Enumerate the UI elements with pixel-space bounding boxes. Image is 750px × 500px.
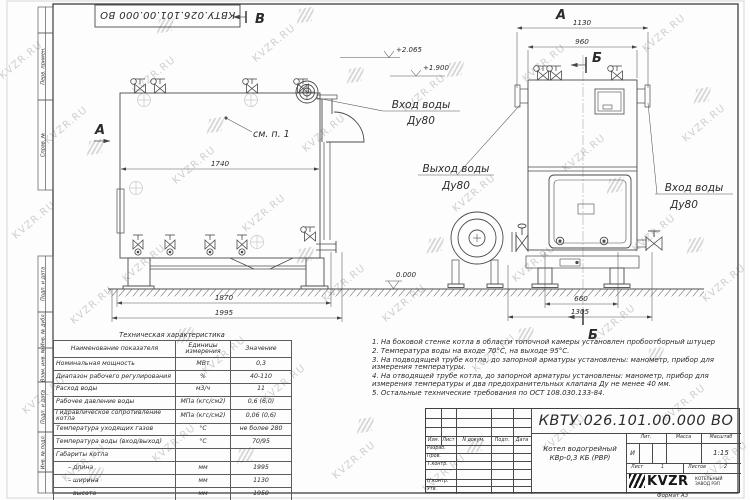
view-markers xyxy=(94,11,586,325)
boiler-side-view xyxy=(117,79,364,289)
product-title-line2: КВр-0,3 КБ (РВР) xyxy=(533,454,627,463)
divider xyxy=(626,463,741,464)
col-header-sign: Подп. xyxy=(491,439,513,444)
row-label-tcontrol: Т.контр. xyxy=(427,463,448,468)
dim-960: 960 xyxy=(575,37,589,46)
view-marker-v: В xyxy=(255,12,265,27)
level-zero: 0.000 xyxy=(396,271,417,279)
table-row: Диапазон рабочего регулирования%40-110 xyxy=(54,370,292,383)
row-label-developed: Разраб. xyxy=(427,447,446,452)
cell: 40-110 xyxy=(231,370,292,383)
cell: Гидравлическое сопротивление котла xyxy=(54,409,176,423)
cell: 1995 xyxy=(231,462,292,475)
cell: °С xyxy=(176,436,231,449)
dim-1305: 1305 xyxy=(571,307,590,316)
pipe-labels: см. п. 1 Вход воды Ду80 Выход воды Ду80 … xyxy=(253,99,723,211)
col-header-izm: Изм. xyxy=(426,439,441,444)
divider xyxy=(426,469,531,470)
col-header-date: Дата xyxy=(513,439,531,444)
table-row: Гидравлическое сопротивление котлаМПа (к… xyxy=(54,409,292,423)
format-note: Формат А3 xyxy=(600,493,745,499)
cell: Рабочее давление воды xyxy=(54,396,176,409)
margin-cell-label: Инв. № дубл. xyxy=(41,313,47,347)
cell xyxy=(176,449,231,462)
row-label-ncontrol: Н.контр. xyxy=(427,480,448,485)
dim-660: 660 xyxy=(574,294,588,303)
dim-1995: 1995 xyxy=(215,308,234,317)
cell: 1130 xyxy=(231,475,292,488)
dim-1130: 1130 xyxy=(573,18,592,27)
table-row: Рабочее давление водыМПа (кгс/см2)0,6 (6… xyxy=(54,396,292,409)
cell: – длина xyxy=(54,462,176,475)
water-inlet-label-right: Вход воды xyxy=(665,182,724,194)
note-item: 1. На боковой стенке котла в области топ… xyxy=(372,339,738,347)
product-title-line1: Котел водогрейный xyxy=(533,445,627,454)
divider xyxy=(491,409,492,494)
cell: МПа (кгс/см2) xyxy=(176,409,231,423)
cell: мм xyxy=(176,488,231,500)
cell: МПа (кгс/см2) xyxy=(176,396,231,409)
level-2065: +2.065 xyxy=(396,46,422,54)
margin-cell-label: Взам. инв. № xyxy=(41,348,47,382)
cell: мм xyxy=(176,462,231,475)
section-marker-b-top: Б xyxy=(592,51,602,66)
col-header: Наименование показателя xyxy=(54,341,176,358)
row-label-approved: Утв. xyxy=(427,488,437,493)
divider xyxy=(513,409,514,494)
cell: % xyxy=(176,370,231,383)
cell: 0,3 xyxy=(231,358,292,371)
title-block: КВТУ.026.101.00.000 ВО Изм. Лист N докум… xyxy=(425,408,740,493)
cell: МВт xyxy=(176,358,231,371)
sheets-value: 2 xyxy=(724,466,727,471)
cell: Номинальная мощность xyxy=(54,358,176,371)
row-label-checked: Пров. xyxy=(427,455,441,460)
table-row: – ширинамм1130 xyxy=(54,475,292,488)
water-inlet-dn-right: Ду80 xyxy=(669,199,698,211)
brand-subtitle-line2: ЗАВОД РЭП xyxy=(695,481,722,486)
kvzr-logo-icon xyxy=(629,474,645,488)
water-inlet-label-left: Вход воды xyxy=(392,99,451,111)
cell: °С xyxy=(176,423,231,436)
table-row: – длинамм1995 xyxy=(54,462,292,475)
cell: Температура воды (вход/выход) xyxy=(54,436,176,449)
divider xyxy=(652,443,653,463)
divider xyxy=(426,427,531,428)
divider xyxy=(626,443,741,444)
leader-lines xyxy=(225,98,733,194)
divider xyxy=(456,409,457,494)
cell: Диапазон рабочего регулирования xyxy=(54,370,176,383)
divider xyxy=(639,443,640,463)
drawing-sheet: KVZR.RUKVZR.RUKVZR.RUKVZR.RUKVZR.RUKVZR.… xyxy=(0,0,750,500)
cell: 1950 xyxy=(231,488,292,500)
technical-notes: 1. На боковой стенке котла в области топ… xyxy=(372,339,738,399)
col-header-list: Лист xyxy=(441,439,456,444)
cell xyxy=(231,449,292,462)
col-header-doc: N докум. xyxy=(456,439,491,444)
table-row: – высотамм1950 xyxy=(54,488,292,500)
ground-hatch xyxy=(108,289,704,297)
divider xyxy=(426,436,531,437)
table-header-row: Наименование показателя Единицы измерени… xyxy=(54,341,292,358)
stamp-doc-number: КВТУ.026.101.00.000 ВО xyxy=(100,9,236,20)
cell: – высота xyxy=(54,488,176,500)
cell: Температура уходящих газов xyxy=(54,423,176,436)
margin-cell-label: Справ. № xyxy=(41,133,47,157)
cell: Расход воды xyxy=(54,383,176,396)
doc-number: КВТУ.026.101.00.000 ВО xyxy=(531,413,741,429)
top-stamp: КВТУ.026.101.00.000 ВО xyxy=(95,5,240,27)
level-1900: +1.900 xyxy=(423,64,449,72)
spec-table: Наименование показателя Единицы измерени… xyxy=(53,340,292,500)
view-marker-a: А xyxy=(555,8,566,23)
cell: 11 xyxy=(231,383,292,396)
cell: м3/ч xyxy=(176,383,231,396)
sheets-label: Листов xyxy=(688,466,706,471)
cell: мм xyxy=(176,475,231,488)
scale-label: Масштаб xyxy=(701,436,741,441)
divider xyxy=(426,418,531,419)
lit-value: И xyxy=(626,450,639,457)
cell: – ширина xyxy=(54,475,176,488)
margin-cell-label: Подп. и дата xyxy=(41,390,47,424)
table-row: Расход водым3/ч11 xyxy=(54,383,292,396)
note-item: 3. На подводящей трубе котла, до запорно… xyxy=(372,357,738,373)
dim-1740: 1740 xyxy=(211,159,230,168)
table-row: Температура уходящих газов°Сне более 280 xyxy=(54,423,292,436)
section-marker-a: А xyxy=(94,123,105,138)
brand-subtitle: КОТЕЛЬНЫЙ ЗАВОД РЭП xyxy=(695,476,722,486)
spec-table-block: Техническая характеристика Наименование … xyxy=(53,331,291,500)
cell: не более 280 xyxy=(231,423,292,436)
margin-cell-label: Перв. примен. xyxy=(41,47,47,85)
note-item: 2. Температура воды на входе 70°С, на вы… xyxy=(372,348,738,356)
mass-label: Масса xyxy=(666,436,701,441)
scale-value: 1:15 xyxy=(701,450,741,457)
boiler-end-view xyxy=(448,55,662,312)
sheet-value: 1 xyxy=(661,466,664,471)
table-row: Номинальная мощностьМВт0,3 xyxy=(54,358,292,371)
water-outlet-dn: Ду80 xyxy=(441,180,470,192)
col-header: Значение xyxy=(231,341,292,358)
margin-cell-label: Инв. № подл. xyxy=(41,435,47,470)
lit-label: Лит. xyxy=(626,436,666,441)
brand-name: KVZR xyxy=(647,474,689,489)
cell: 0,06 (0,6) xyxy=(231,409,292,423)
margin-cell-label: Подп. и дата xyxy=(41,267,47,301)
spec-table-title: Техническая характеристика xyxy=(53,331,291,339)
dim-1870: 1870 xyxy=(215,293,234,302)
cell: Габариты котла xyxy=(54,449,176,462)
table-row: Габариты котла xyxy=(54,449,292,462)
cell: 70/95 xyxy=(231,436,292,449)
water-outlet-label: Выход воды xyxy=(423,163,490,175)
sheet-label: Лист xyxy=(631,466,643,471)
divider xyxy=(531,433,741,434)
see-note-label: см. п. 1 xyxy=(253,129,290,140)
divider xyxy=(426,453,531,454)
water-inlet-dn-left: Ду80 xyxy=(406,115,435,127)
table-row: Температура воды (вход/выход)°С70/95 xyxy=(54,436,292,449)
note-item: 5. Остальные технические требования по О… xyxy=(372,390,738,398)
cell: 0,6 (6,0) xyxy=(231,396,292,409)
col-header: Единицы измерения xyxy=(176,341,231,358)
divider xyxy=(683,463,684,473)
note-item: 4. На отводящей трубе котла, до запорной… xyxy=(372,373,738,389)
divider xyxy=(426,486,531,487)
product-title: Котел водогрейный КВр-0,3 КБ (РВР) xyxy=(533,445,627,463)
